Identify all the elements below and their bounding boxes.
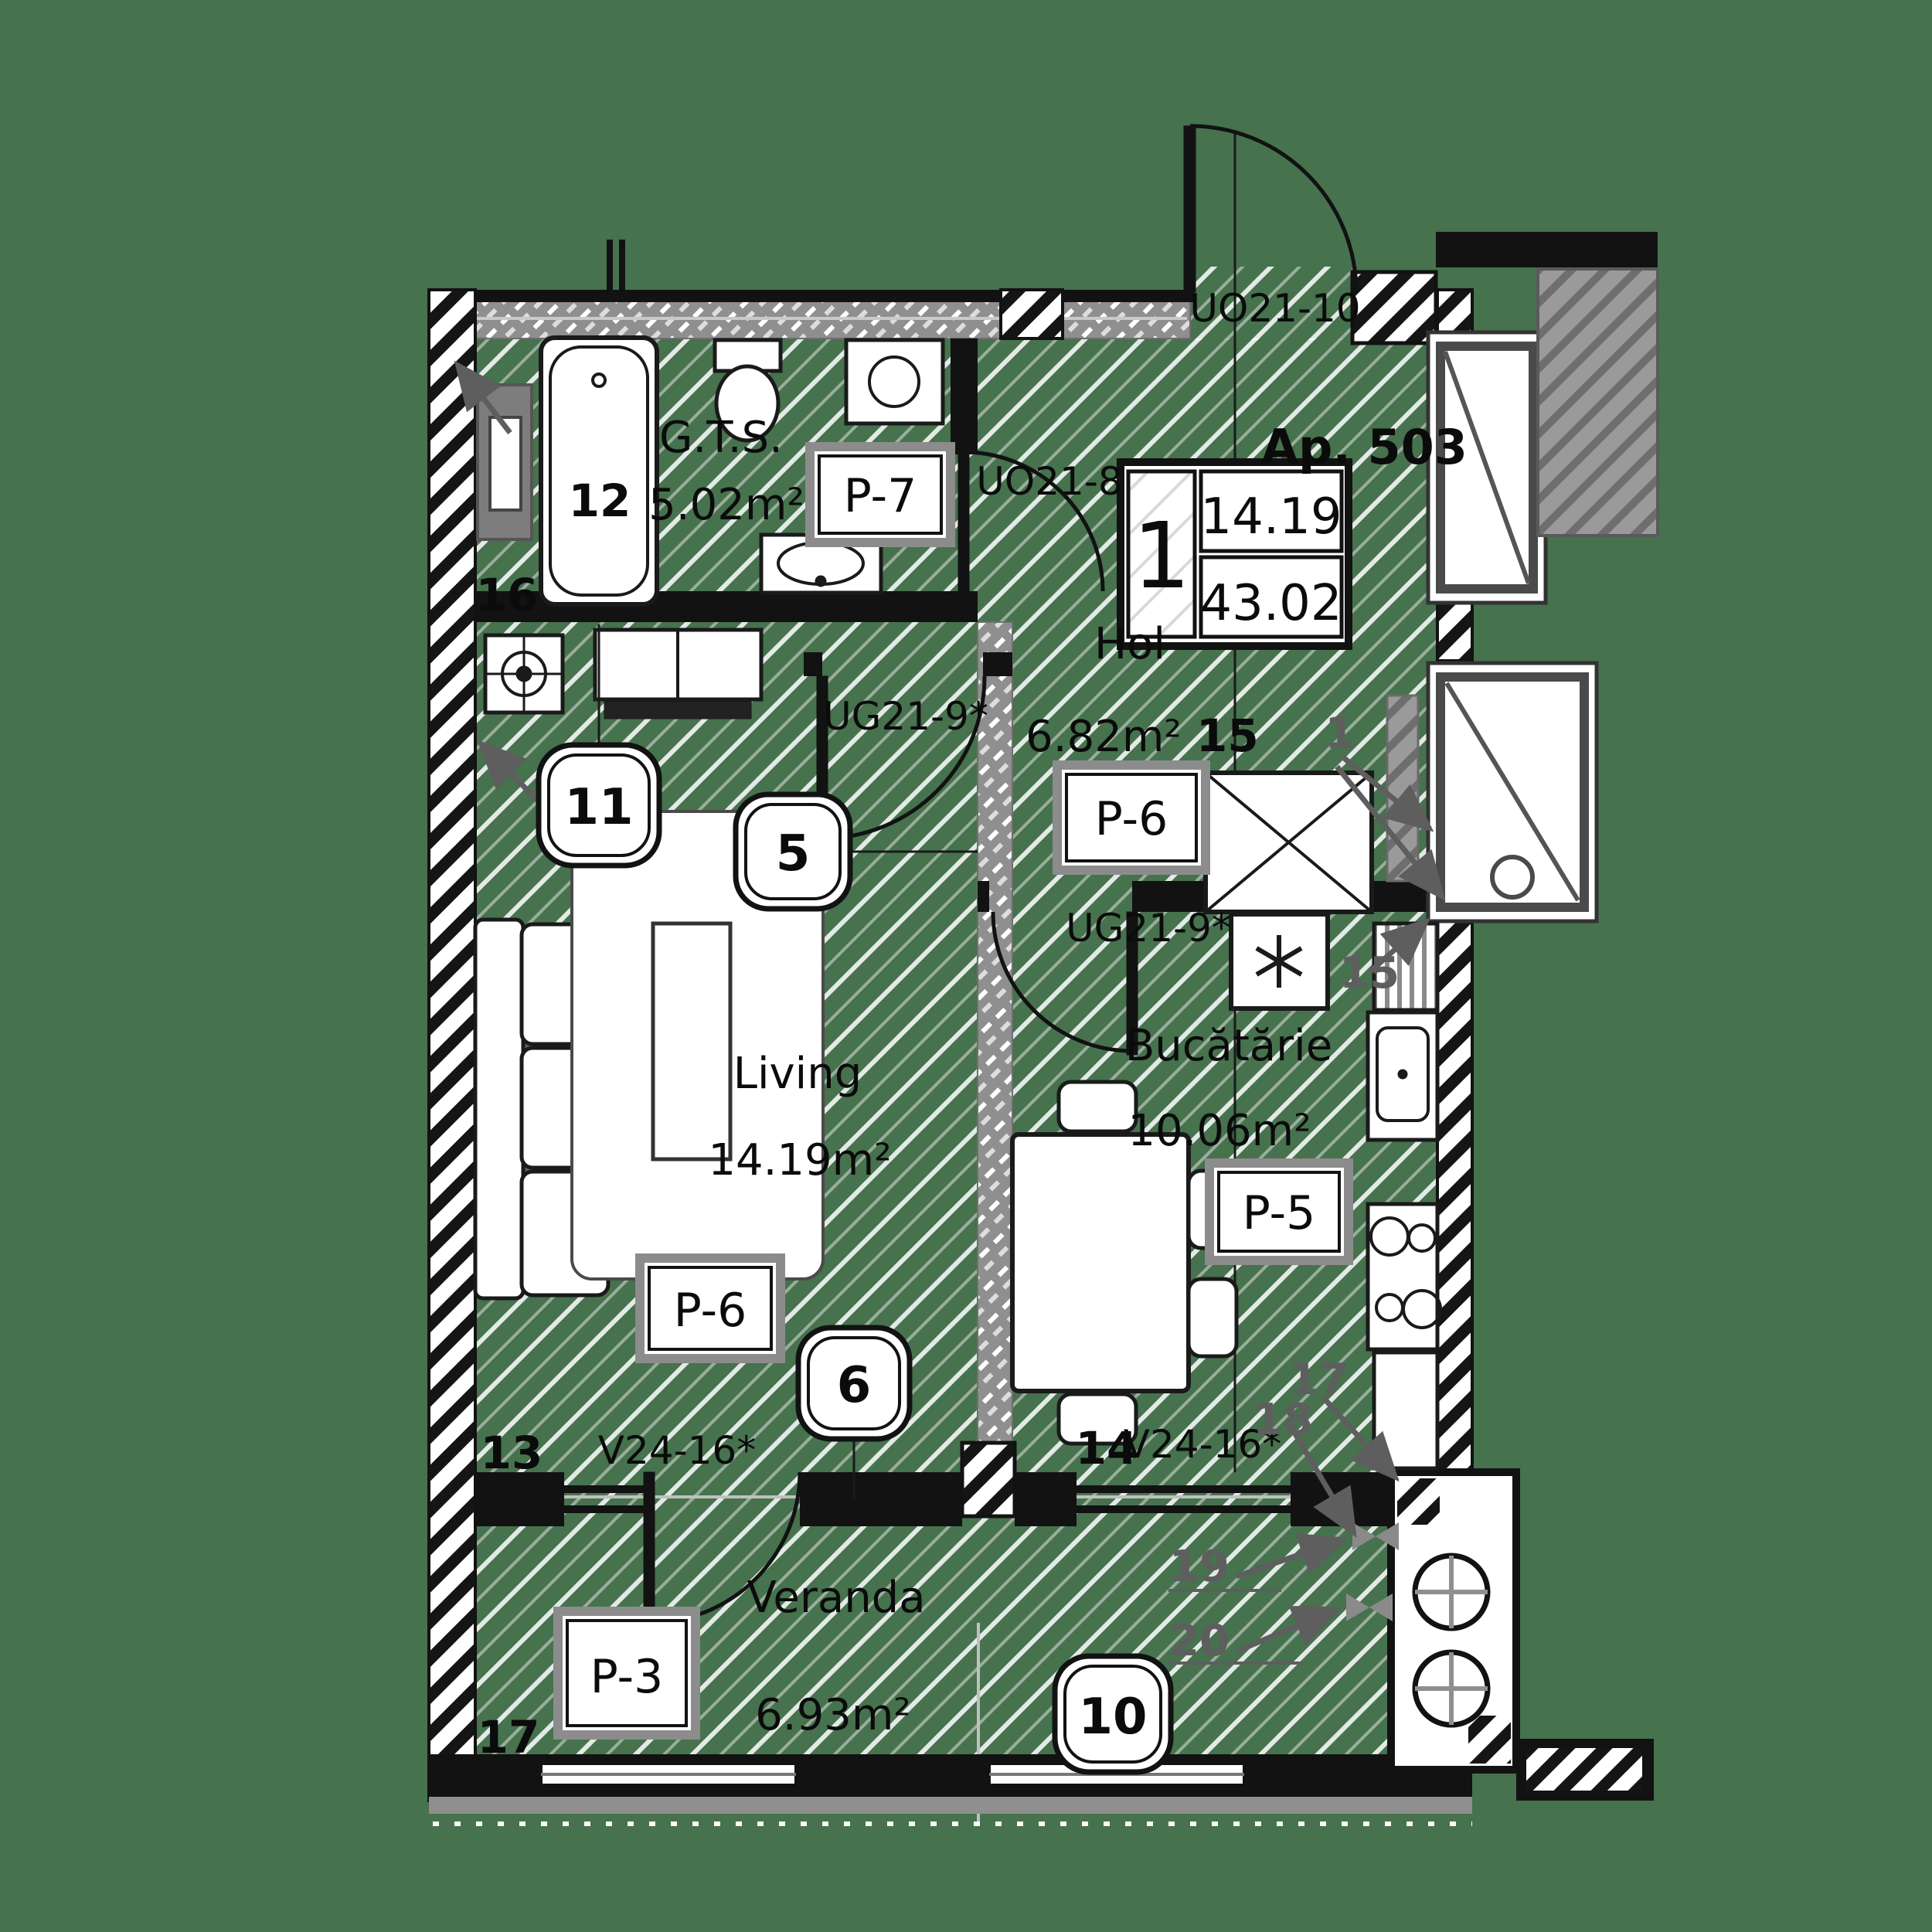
fixture-number-12: 12: [569, 474, 631, 527]
door-code-living: UG21-9*: [823, 694, 988, 739]
marker-number: 10: [1078, 1689, 1147, 1746]
finish-box-veranda: P-3: [558, 1611, 696, 1735]
finish-label: P-5: [1243, 1186, 1316, 1240]
window-line: [1077, 1485, 1291, 1493]
finish-box-hol: P-6: [1057, 765, 1206, 870]
veranda-wall-seg1: [475, 1472, 564, 1526]
shaft-pier-1: [1397, 1478, 1440, 1525]
washing-machine-drum: [869, 357, 919, 406]
room-name-veranda: Veranda: [747, 1573, 925, 1623]
window-code-left: V24-16*: [598, 1428, 757, 1473]
marker-10: 10: [1055, 1656, 1171, 1772]
room-area-hol: 6.82m²: [1026, 712, 1182, 762]
entrance-door-leaf: [1184, 126, 1196, 292]
top-wall-pier: [1001, 290, 1063, 338]
finish-label: P-6: [1095, 792, 1168, 846]
entry-door-pier: [1352, 272, 1436, 343]
top-right-wall: [1436, 232, 1658, 267]
leader-number-18: 18: [1253, 1395, 1313, 1445]
chair: [1189, 1279, 1236, 1356]
vent-line-2: [619, 240, 625, 292]
finish-box-gts: P-7: [810, 447, 951, 543]
finish-box-living: P-6: [640, 1258, 781, 1359]
rooms-count: 1: [1132, 502, 1190, 609]
marker-11: 11: [539, 745, 659, 866]
door-code-entrance: UO21-10: [1189, 286, 1360, 331]
shaft-lower-hatch: [1526, 1748, 1642, 1791]
apartment-title: Ap. 503: [1261, 419, 1468, 475]
floor-plan-canvas: 1 14.19 43.02 P-7 P-6 P-6 P-5 P-3: [0, 0, 1932, 1932]
window-line: [564, 1485, 649, 1493]
leader-number-20: 20: [1169, 1616, 1230, 1666]
wall-number-13: 13: [481, 1427, 543, 1479]
room-name-hol: Hol: [1094, 619, 1165, 669]
room-area-gts: 5.02m²: [648, 480, 804, 530]
room-area-living: 14.19m²: [708, 1135, 891, 1185]
radiator: [1387, 696, 1418, 881]
veranda-wall-seg3: [908, 1472, 962, 1526]
floor-plan-page: 1 14.19 43.02 P-7 P-6 P-6 P-5 P-3: [0, 0, 1932, 1932]
wall-number-16: 16: [476, 569, 539, 621]
vent-line-1: [607, 240, 613, 292]
right-wall-seg-mid: [1437, 603, 1472, 661]
chair: [1059, 1082, 1136, 1131]
kitchen-sink-drain: [1398, 1070, 1407, 1079]
living-door-jamb-left: [804, 652, 822, 676]
top-right-gray-block: [1538, 269, 1658, 536]
total-area-value: 43.02: [1200, 575, 1342, 632]
dining-table: [1012, 1134, 1189, 1391]
room-area-veranda: 6.93m²: [755, 1690, 911, 1740]
marker-number: 5: [776, 825, 811, 883]
leader-number-1: 1: [1325, 709, 1355, 759]
coffee-table: [653, 923, 730, 1159]
shaft-pier-2: [1468, 1716, 1511, 1764]
window-line: [564, 1505, 649, 1513]
marker-6: 6: [798, 1328, 910, 1439]
right-wall-seg-top: [1437, 290, 1472, 332]
room-name-gts: G.T.S.: [659, 413, 783, 463]
window-line: [1077, 1505, 1291, 1513]
bottom-sill-band: [429, 1797, 1472, 1814]
veranda-door-leaf: [644, 1472, 655, 1623]
bathroom-right-wall: [951, 338, 978, 454]
living-door-jamb-right: [983, 652, 1012, 676]
finish-box-kitchen: P-5: [1209, 1163, 1349, 1260]
sofa-back: [475, 920, 523, 1298]
finish-label: P-3: [590, 1650, 664, 1704]
room-name-kitchen: Bucătărie: [1125, 1021, 1332, 1071]
sink-tap: [815, 576, 826, 587]
top-wall-line-left: [429, 290, 1194, 302]
door-code-bathroom: UO21-8: [976, 459, 1122, 504]
tv: [604, 702, 751, 719]
marker-number: 11: [564, 779, 633, 836]
finish-label: P-6: [674, 1284, 747, 1338]
room-name-living: Living: [733, 1049, 862, 1099]
marker-number: 6: [837, 1357, 872, 1414]
bathroom-door-leaf: [958, 452, 969, 595]
towel-radiator-inner: [490, 417, 521, 510]
bathtub-drain: [593, 374, 605, 386]
wall-number-14: 14: [1076, 1422, 1138, 1475]
veranda-wall-pier: [962, 1443, 1015, 1516]
dim-number-15: 15: [1196, 709, 1259, 762]
room-area-kitchen: 10.06m²: [1128, 1106, 1311, 1156]
leader-number-19: 19: [1169, 1542, 1230, 1592]
veranda-wall-seg4: [1015, 1472, 1077, 1526]
finish-label: P-7: [844, 469, 917, 523]
hol-bottom-wall-left: [978, 881, 989, 912]
living-kitchen-partition: [978, 622, 1012, 1472]
wall-number-17: 17: [478, 1711, 540, 1764]
kitchen-counter: [1374, 1352, 1437, 1468]
marker-5: 5: [736, 794, 850, 909]
leader-number-15: 15: [1339, 948, 1400, 998]
left-exterior-wall: [429, 290, 475, 1801]
living-area-value: 14.19: [1200, 488, 1342, 546]
door-code-kitchen: UG21-9*: [1066, 906, 1231, 951]
